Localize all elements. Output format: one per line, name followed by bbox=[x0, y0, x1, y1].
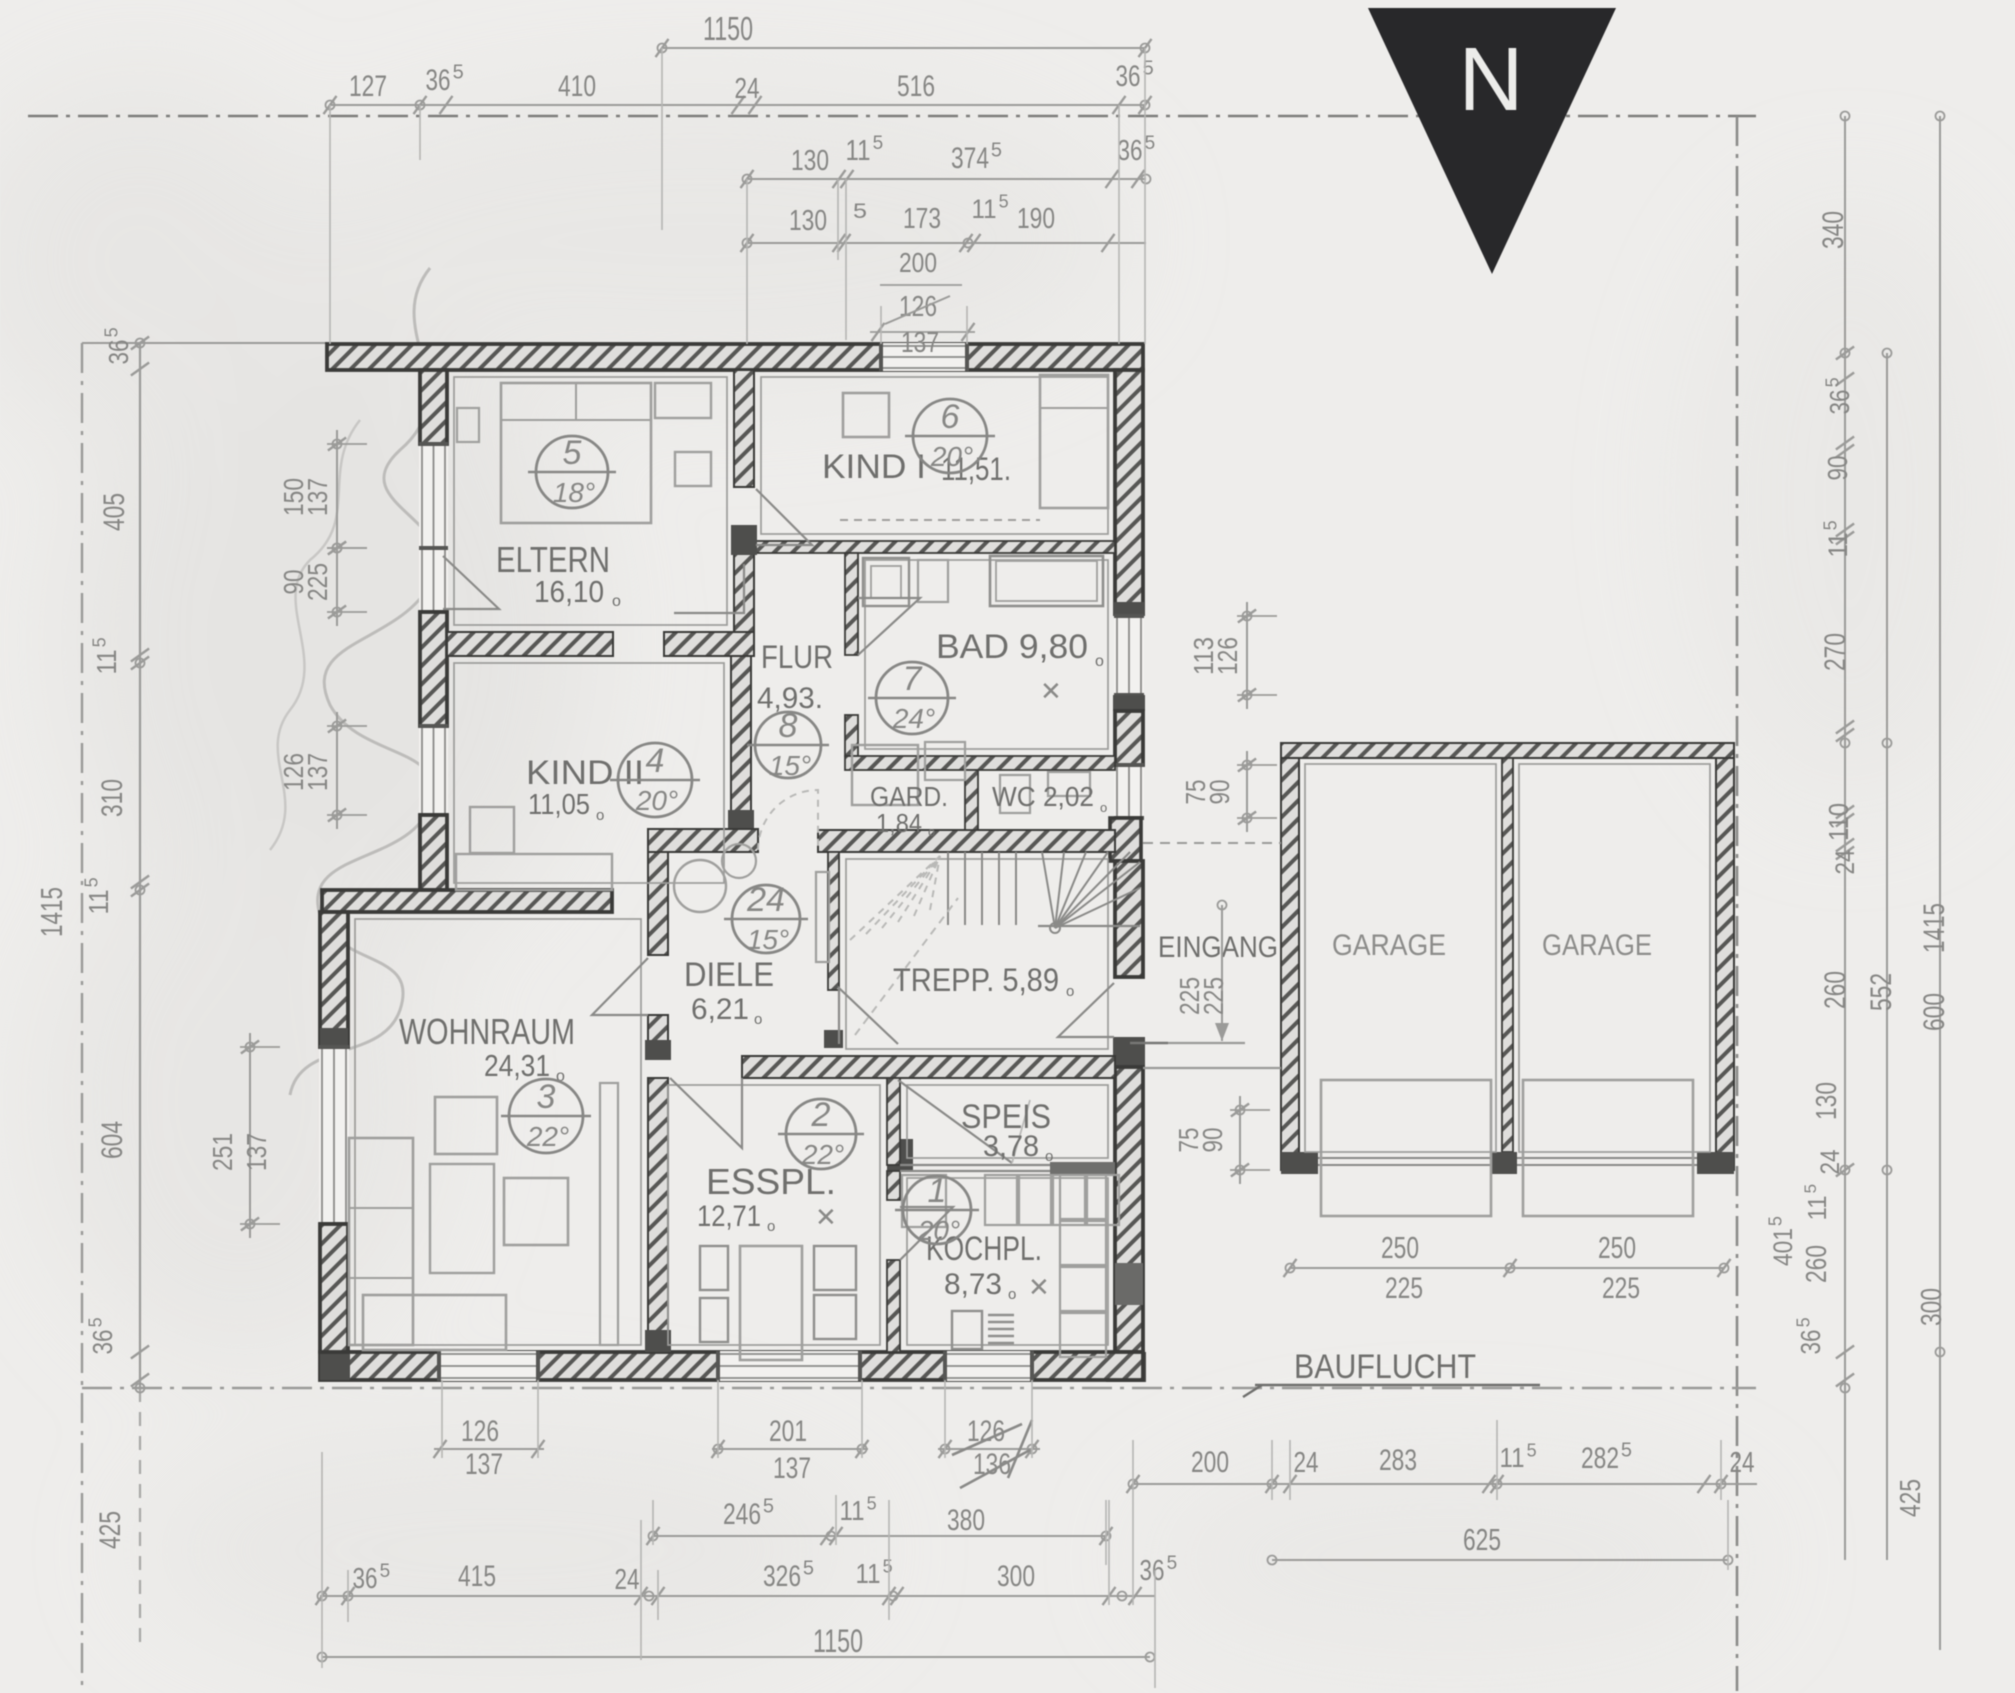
svg-text:340: 340 bbox=[1817, 211, 1850, 249]
svg-text:282: 282 bbox=[1581, 1442, 1619, 1475]
svg-text:425: 425 bbox=[1895, 1479, 1927, 1517]
svg-text:6: 6 bbox=[941, 398, 960, 436]
svg-text:o: o bbox=[596, 807, 604, 824]
svg-text:625: 625 bbox=[1463, 1522, 1501, 1557]
svg-text:5: 5 bbox=[1766, 1216, 1786, 1226]
svg-text:24: 24 bbox=[1730, 1447, 1755, 1479]
svg-text:WC 2,02: WC 2,02 bbox=[992, 781, 1094, 812]
svg-text:326: 326 bbox=[763, 1560, 801, 1593]
svg-text:4: 4 bbox=[646, 742, 665, 780]
svg-text:1415: 1415 bbox=[34, 887, 69, 937]
svg-text:24: 24 bbox=[615, 1564, 640, 1596]
svg-text:300: 300 bbox=[997, 1560, 1035, 1593]
svg-text:260: 260 bbox=[1819, 971, 1852, 1009]
svg-text:11: 11 bbox=[972, 194, 997, 224]
svg-text:251: 251 bbox=[207, 1133, 238, 1171]
svg-text:5: 5 bbox=[853, 200, 867, 223]
svg-text:5: 5 bbox=[89, 637, 109, 647]
svg-text:90: 90 bbox=[1197, 1128, 1228, 1153]
svg-text:225: 225 bbox=[302, 563, 333, 601]
svg-text:270: 270 bbox=[1819, 633, 1852, 671]
svg-text:24: 24 bbox=[1815, 1150, 1845, 1175]
svg-text:7: 7 bbox=[903, 660, 923, 698]
svg-text:201: 201 bbox=[769, 1415, 807, 1448]
svg-text:5: 5 bbox=[1527, 1440, 1537, 1460]
svg-text:22°: 22° bbox=[801, 1139, 844, 1170]
svg-text:o: o bbox=[1008, 1286, 1016, 1303]
svg-text:11: 11 bbox=[1500, 1442, 1525, 1473]
svg-text:18°: 18° bbox=[553, 477, 595, 508]
svg-text:250: 250 bbox=[1381, 1230, 1419, 1265]
svg-text:2: 2 bbox=[811, 1096, 831, 1134]
svg-text:137: 137 bbox=[302, 753, 333, 791]
svg-text:130: 130 bbox=[789, 205, 827, 237]
svg-text:36: 36 bbox=[1140, 1555, 1165, 1587]
svg-text:N: N bbox=[1459, 30, 1524, 130]
svg-text:EINGANG: EINGANG bbox=[1158, 931, 1278, 964]
svg-text:5: 5 bbox=[991, 140, 1002, 162]
svg-text:5: 5 bbox=[1822, 377, 1842, 387]
svg-text:o: o bbox=[1045, 1148, 1053, 1165]
svg-text:137: 137 bbox=[773, 1452, 811, 1485]
svg-text:11: 11 bbox=[1802, 1196, 1832, 1221]
svg-text:15°: 15° bbox=[769, 750, 811, 781]
svg-text:260: 260 bbox=[1801, 1245, 1833, 1283]
svg-text:5: 5 bbox=[873, 133, 884, 154]
svg-text:11: 11 bbox=[856, 1558, 881, 1589]
svg-text:✕: ✕ bbox=[815, 1202, 837, 1232]
svg-text:o: o bbox=[767, 1218, 775, 1235]
svg-text:24: 24 bbox=[1294, 1447, 1319, 1479]
svg-text:126: 126 bbox=[967, 1415, 1005, 1448]
svg-text:310: 310 bbox=[96, 779, 129, 817]
svg-text:GARAGE: GARAGE bbox=[1542, 929, 1652, 962]
svg-text:5: 5 bbox=[803, 1558, 814, 1580]
svg-text:FLUR: FLUR bbox=[761, 639, 833, 675]
svg-text:1415: 1415 bbox=[1918, 903, 1951, 953]
svg-text:90: 90 bbox=[1822, 456, 1853, 481]
svg-text:22°: 22° bbox=[526, 1121, 569, 1152]
svg-text:20°: 20° bbox=[635, 785, 678, 816]
svg-text:36: 36 bbox=[353, 1563, 378, 1595]
svg-text:130: 130 bbox=[1811, 1082, 1843, 1120]
svg-text:5: 5 bbox=[380, 1561, 391, 1582]
svg-text:137: 137 bbox=[465, 1448, 503, 1481]
svg-text:TREPP. 5,89: TREPP. 5,89 bbox=[893, 962, 1059, 998]
svg-text:5: 5 bbox=[999, 192, 1009, 212]
svg-text:600: 600 bbox=[1918, 993, 1951, 1031]
svg-text:5: 5 bbox=[1821, 520, 1841, 530]
svg-text:225: 225 bbox=[1385, 1272, 1423, 1305]
svg-text:8,73: 8,73 bbox=[944, 1268, 1002, 1301]
svg-text:6,21: 6,21 bbox=[691, 993, 749, 1026]
svg-text:5: 5 bbox=[563, 434, 582, 472]
svg-text:137: 137 bbox=[901, 327, 939, 359]
svg-text:401: 401 bbox=[1768, 1228, 1798, 1266]
svg-text:5: 5 bbox=[883, 1556, 893, 1576]
svg-text:225: 225 bbox=[1198, 977, 1229, 1015]
svg-text:5: 5 bbox=[763, 1496, 774, 1518]
svg-text:374: 374 bbox=[951, 142, 989, 175]
svg-text:o: o bbox=[1095, 653, 1104, 670]
svg-text:130: 130 bbox=[791, 145, 829, 177]
svg-text:127: 127 bbox=[349, 70, 387, 103]
svg-text:3,78: 3,78 bbox=[983, 1130, 1039, 1163]
svg-text:246: 246 bbox=[723, 1498, 761, 1531]
svg-text:DIELE: DIELE bbox=[684, 956, 774, 994]
svg-text:11,05: 11,05 bbox=[528, 789, 590, 821]
svg-text:11: 11 bbox=[83, 890, 114, 915]
svg-text:250: 250 bbox=[1598, 1230, 1636, 1265]
svg-text:o: o bbox=[1066, 983, 1074, 1000]
svg-text:137: 137 bbox=[241, 1133, 272, 1171]
svg-text:8: 8 bbox=[779, 707, 798, 745]
svg-text:126: 126 bbox=[461, 1415, 499, 1448]
svg-text:173: 173 bbox=[903, 203, 941, 235]
svg-text:36: 36 bbox=[1824, 390, 1855, 415]
svg-text:300: 300 bbox=[1916, 1288, 1948, 1326]
svg-text:5: 5 bbox=[1145, 133, 1156, 154]
svg-text:1: 1 bbox=[928, 1172, 947, 1210]
svg-text:✕: ✕ bbox=[1028, 1272, 1050, 1302]
svg-text:36: 36 bbox=[426, 64, 451, 97]
svg-text:11: 11 bbox=[846, 135, 871, 167]
svg-text:137: 137 bbox=[302, 478, 333, 516]
svg-text:5: 5 bbox=[85, 1317, 105, 1327]
svg-text:405: 405 bbox=[98, 493, 131, 531]
svg-text:5: 5 bbox=[867, 1493, 877, 1513]
svg-text:o: o bbox=[754, 1011, 762, 1028]
svg-text:KIND I: KIND I bbox=[822, 448, 926, 486]
svg-text:36: 36 bbox=[87, 1330, 118, 1355]
svg-text:5: 5 bbox=[1621, 1440, 1632, 1462]
svg-text:200: 200 bbox=[1191, 1446, 1229, 1479]
svg-text:5: 5 bbox=[1793, 1317, 1813, 1327]
svg-text:o: o bbox=[612, 593, 621, 610]
svg-text:o: o bbox=[928, 824, 935, 839]
svg-text:36: 36 bbox=[1795, 1330, 1826, 1355]
svg-text:90: 90 bbox=[1204, 780, 1235, 805]
svg-text:283: 283 bbox=[1379, 1444, 1417, 1477]
svg-text:24°: 24° bbox=[892, 703, 935, 734]
svg-text:20°: 20° bbox=[930, 441, 973, 472]
svg-text:11: 11 bbox=[1823, 533, 1853, 558]
svg-text:36: 36 bbox=[1116, 60, 1141, 93]
svg-text:190: 190 bbox=[1017, 203, 1055, 235]
svg-text:380: 380 bbox=[947, 1504, 985, 1537]
svg-text:410: 410 bbox=[558, 70, 596, 103]
svg-text:36: 36 bbox=[103, 340, 134, 365]
svg-text:WOHNRAUM: WOHNRAUM bbox=[399, 1011, 575, 1052]
svg-text:225: 225 bbox=[1602, 1272, 1640, 1305]
svg-text:16,10: 16,10 bbox=[534, 574, 604, 609]
svg-text:5: 5 bbox=[81, 877, 101, 887]
svg-text:126: 126 bbox=[899, 291, 937, 323]
svg-text:1150: 1150 bbox=[813, 1623, 863, 1659]
svg-text:BAUFLUCHT: BAUFLUCHT bbox=[1294, 1348, 1476, 1386]
svg-text:200: 200 bbox=[899, 247, 937, 278]
svg-text:20°: 20° bbox=[917, 1215, 960, 1246]
svg-text:552: 552 bbox=[1865, 973, 1898, 1011]
svg-text:24: 24 bbox=[746, 881, 785, 919]
svg-text:11: 11 bbox=[91, 650, 122, 675]
svg-text:GARAGE: GARAGE bbox=[1332, 929, 1446, 962]
svg-text:110: 110 bbox=[1823, 803, 1854, 841]
svg-text:5: 5 bbox=[101, 327, 121, 337]
svg-text:BAD 9,80: BAD 9,80 bbox=[936, 628, 1088, 666]
svg-text:1150: 1150 bbox=[703, 10, 753, 47]
svg-text:3: 3 bbox=[537, 1078, 556, 1116]
svg-text:11: 11 bbox=[840, 1495, 865, 1526]
svg-text:✕: ✕ bbox=[1040, 676, 1062, 706]
svg-text:1,84: 1,84 bbox=[876, 808, 922, 838]
svg-text:12,71: 12,71 bbox=[697, 1200, 761, 1233]
svg-text:5: 5 bbox=[453, 62, 464, 84]
svg-text:o: o bbox=[1100, 800, 1107, 815]
svg-text:24: 24 bbox=[1830, 850, 1860, 875]
svg-text:604: 604 bbox=[96, 1121, 129, 1159]
svg-text:5: 5 bbox=[1167, 1553, 1178, 1574]
svg-text:516: 516 bbox=[897, 70, 935, 103]
svg-text:126: 126 bbox=[1212, 637, 1243, 675]
svg-text:KIND II: KIND II bbox=[526, 754, 644, 792]
svg-text:24: 24 bbox=[735, 73, 760, 105]
svg-text:5: 5 bbox=[1801, 1184, 1820, 1193]
svg-text:15°: 15° bbox=[747, 924, 789, 955]
svg-text:36: 36 bbox=[1118, 135, 1143, 167]
svg-text:425: 425 bbox=[94, 1511, 127, 1549]
svg-text:415: 415 bbox=[458, 1560, 496, 1593]
